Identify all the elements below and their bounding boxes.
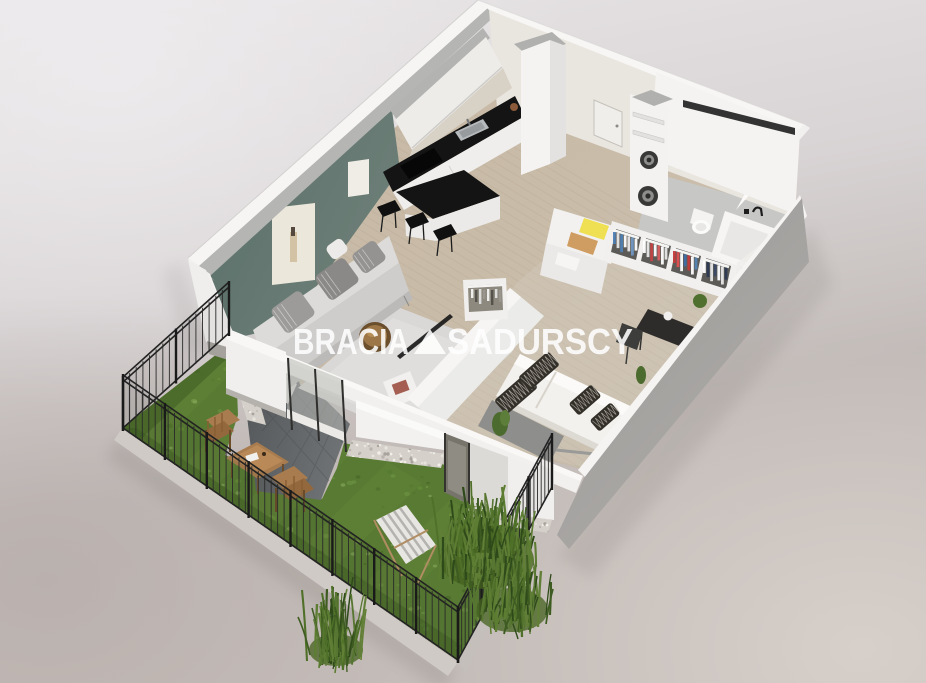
svg-text:BRACIA: BRACIA: [293, 321, 409, 362]
svg-text:SADURSCY: SADURSCY: [447, 321, 633, 362]
